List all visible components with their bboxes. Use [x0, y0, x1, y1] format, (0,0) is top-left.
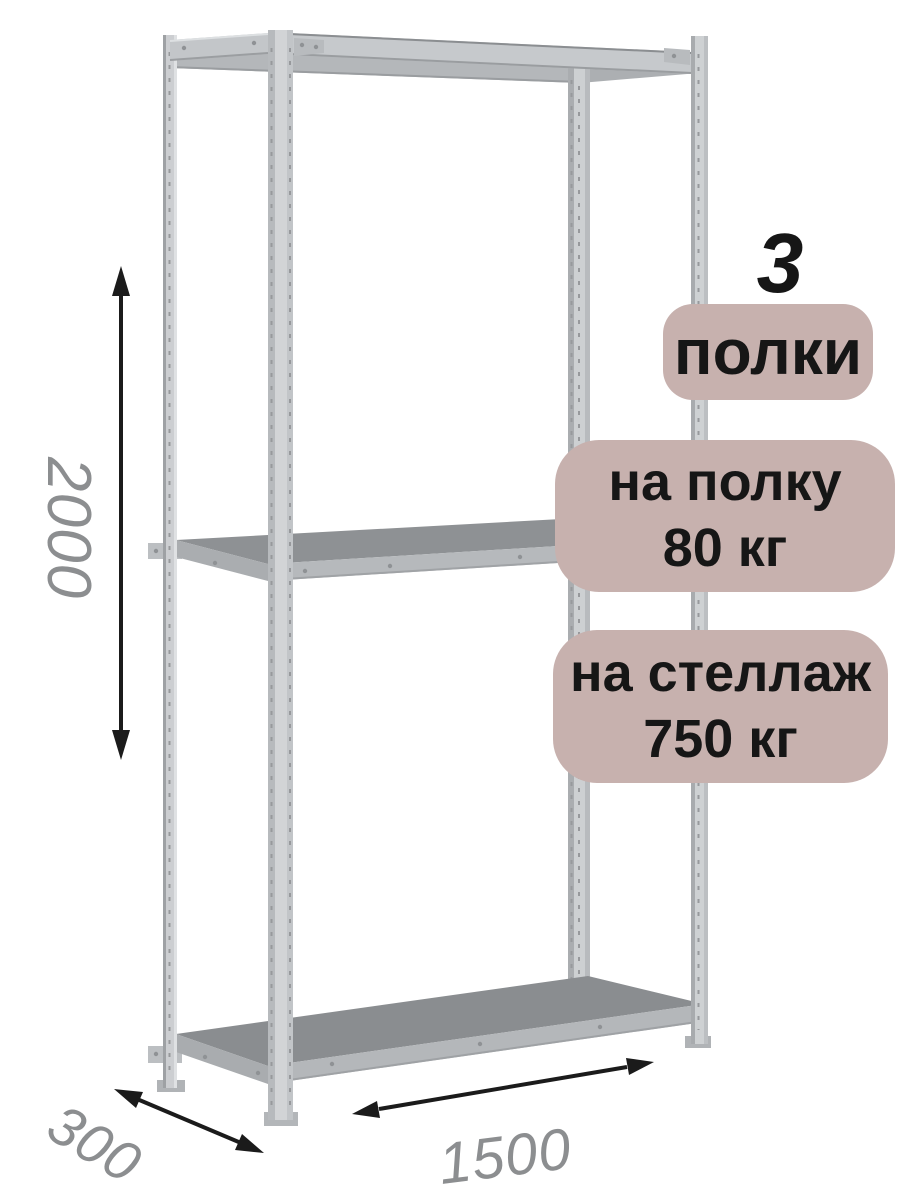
badge-per-shelf-line2: 80 кг	[663, 516, 788, 582]
post-front-left	[264, 30, 298, 1126]
badge-per-rack-line2: 750 кг	[643, 707, 798, 773]
badge-per-rack-line1: на стеллаж	[570, 641, 871, 707]
badge-shelf-count: полки	[663, 304, 873, 400]
rack-illustration	[0, 0, 900, 1200]
badge-per-shelf-load: на полку 80 кг	[555, 440, 895, 592]
badge-per-shelf-line1: на полку	[608, 450, 841, 516]
height-dimension-label: 2000	[34, 423, 104, 633]
post-back-left	[157, 35, 185, 1092]
product-image: 2000 300 1500 3 полки на полку 80 кг на …	[0, 0, 900, 1200]
badge-per-rack-load: на стеллаж 750 кг	[553, 630, 888, 783]
badge-shelf-count-label: полки	[674, 315, 862, 389]
shelf-count-number: 3	[730, 218, 830, 308]
height-dimension-arrow	[112, 266, 130, 760]
